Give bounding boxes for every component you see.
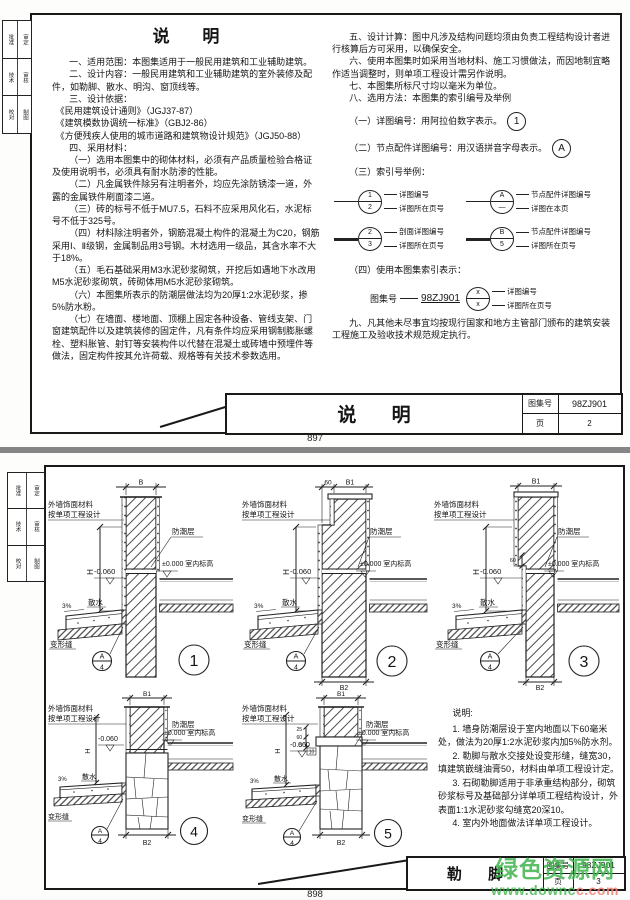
dim-label: B2: [337, 840, 346, 847]
ref-circle-bottom: 4: [488, 665, 492, 672]
para: （三）砖的标号不低于MU7.5，石料不应采用风化石，水泥标号不低于325号。: [52, 203, 320, 227]
facade-label-2: 按单项工程设计: [434, 509, 487, 519]
catalog-number: 98ZJ901: [421, 292, 460, 306]
outdoor-level-label: -0.060: [94, 567, 115, 576]
facade-label-1: 外墙饰面材料: [48, 499, 93, 509]
title-block-bottom: 勒 脚 图集号 98ZJ901 页 3: [406, 856, 626, 891]
index-label: 详图所在页号: [531, 241, 576, 251]
para: （五）毛石基础采用M3水泥砂浆砌筑，开挖后如遇地下水改用M5水泥砂浆砌筑，砖砌体…: [52, 264, 320, 288]
dim-label: B2: [143, 840, 152, 847]
para: （三）索引号举例：: [332, 166, 616, 178]
para: （一）详图编号：用阿拉伯数字表示。1: [332, 112, 616, 131]
index-label: 详图在本页: [531, 204, 569, 214]
title-block-name: 说 明: [227, 395, 522, 433]
dim-label-h: H: [83, 748, 92, 753]
index-label: 详图编号: [507, 287, 537, 297]
para: 一、适用范围：本图集适用于一般民用建筑和工业辅助建筑。: [52, 56, 320, 68]
slope-label: 3%: [452, 603, 462, 610]
detail-number: 4: [190, 824, 198, 840]
notes-right-column: 五、设计计算：图中凡涉及结构问题均须由负责工程结构设计者进行核算后方可采用，以确…: [332, 31, 616, 341]
index-circle: xx: [466, 287, 490, 311]
apron-label: 散水: [274, 774, 288, 783]
side-tab-strip-top: 批准审定 技术审核 校对制图: [2, 20, 32, 134]
catalog-label: 图集号: [370, 293, 397, 305]
apron-label: 散水: [282, 597, 297, 607]
para: 四、采用材料：: [52, 142, 320, 154]
tab-cell: 审核: [26, 509, 45, 544]
facade-label-1: 外墙饰面材料: [242, 499, 287, 509]
tab-cell: 技术: [8, 509, 26, 544]
detail-3: B1 60 外墙饰面材料 按单项工程设计 防潮层 ±0.000 室内标高 H -…: [432, 477, 622, 696]
facade-label-2: 按单项工程设计: [48, 509, 101, 519]
dpc-label: 防潮层: [366, 719, 389, 729]
dim-label: 60: [324, 480, 332, 487]
para: （二）凡金属铁件除另有注明者外，均应先涂防锈漆一道，外露的金属铁件刷面漆二道。: [52, 178, 320, 202]
slope-label: 3%: [62, 603, 72, 610]
facade-label-2: 按单项工程设计: [48, 713, 101, 723]
detail-number: 5: [384, 826, 392, 842]
joint-label: 变形缝: [436, 639, 459, 649]
tab-cell: 审核: [17, 59, 32, 96]
tab-cell: 审定: [17, 21, 32, 58]
para: （四）材料除注明者外，钢筋混凝土构件的混凝土为C20，钢筋采用Ⅰ、Ⅱ级钢，金属制…: [52, 227, 320, 264]
para: 二、设计内容：一般民用建筑和工业辅助建筑的室外装修及配件，如勒脚、散水、明沟、窗…: [52, 68, 320, 92]
dim-label: 25: [296, 727, 302, 733]
ref-circle-bottom: 4: [100, 665, 104, 672]
tab-cell: 审定: [26, 473, 45, 508]
detail-5: B1 25 60 5 10 60 外墙饰面材料 按单项工程设计 防潮层 ±0.0…: [240, 691, 430, 862]
dim-label: 60: [510, 558, 516, 564]
index-circle: 12: [358, 190, 382, 214]
tab-cell: 批准: [8, 473, 26, 508]
para: 七、本图集所标尺寸均以毫米为单位。: [332, 80, 616, 92]
page-label: 页: [523, 414, 559, 433]
catalog-number: 98ZJ901: [559, 395, 621, 415]
page-notes: 批准审定 技术审核 校对制图 说 明 一、适用范围：本图集适用于一般民用建筑和工…: [30, 13, 622, 434]
notes-left-column: 说 明 一、适用范围：本图集适用于一般民用建筑和工业辅助建筑。 二、设计内容：一…: [52, 23, 320, 362]
joint-label: 变形缝: [50, 639, 73, 649]
indoor-level-label: ±0.000 室内标高: [358, 728, 409, 737]
tab-cell: 制图: [26, 546, 45, 581]
tab-cell: 批准: [3, 21, 17, 58]
dim-label-h: H: [273, 748, 282, 753]
para: （四）使用本图集索引表示：: [332, 264, 616, 276]
scan-page-number-bottom: 898: [0, 889, 630, 900]
facade-label-2: 按单项工程设计: [242, 509, 295, 519]
page-label: 页: [544, 874, 574, 889]
catalog-index-example: 图集号 98ZJ901 xx 详图编号 详图所在页号: [370, 287, 616, 311]
para: 三、设计依据：: [52, 93, 320, 105]
slope-label: 3%: [58, 777, 67, 783]
dpc-label: 防潮层: [370, 526, 393, 536]
title-block-name: 勒 脚: [408, 858, 543, 889]
detail-2: 60 B1 外墙饰面材料 按单项工程设计 防潮层 ±0.000 室内标高 H -…: [240, 477, 430, 696]
index-examples: 12 详图编号 详图所在页号 A— 节点配件详图编号 详图在本页 23 剖面详图…: [332, 190, 616, 252]
page-plinth-details: 批准审定 技术审核 校对制图 B 外墙饰面材料 按单项工程设计 防潮层 ±0.0…: [44, 465, 625, 890]
para: 六、使用本图集时如采用当地材料、施工习惯做法，而因地制宜略作适当调整时，则单项工…: [332, 55, 616, 79]
para-ref: 《建筑模数协调统一标准》（GBJ2-86）: [52, 117, 320, 129]
index-circle: B5: [490, 227, 514, 251]
note-item: 2. 勒脚与散水交接处设变形缝，缝宽30，填建筑嵌缝油膏50，材料由单项工程设计…: [438, 750, 620, 777]
index-label: 详图编号: [399, 190, 429, 200]
facade-label-1: 外墙饰面材料: [48, 703, 93, 713]
detail-2-drawing: 60 B1 外墙饰面材料 按单项工程设计 防潮层 ±0.000 室内标高 H -…: [240, 477, 430, 691]
dim-label: B2: [536, 685, 545, 691]
index-label: 详图所在页号: [399, 241, 444, 251]
index-label: 详图所在页号: [507, 301, 552, 311]
ref-circle-top: A: [488, 654, 493, 661]
indoor-level-label: ±0.000 室内标高: [164, 728, 215, 737]
joint-label: 变形缝: [242, 814, 263, 823]
detail-1: B 外墙饰面材料 按单项工程设计 防潮层 ±0.000 室内标高 H -0.06…: [46, 477, 236, 696]
frame-diagonal: [258, 860, 408, 885]
ref-circle-bottom: 4: [290, 840, 294, 847]
scan-separator: [0, 447, 630, 453]
index-label: 节点配件详图编号: [531, 190, 591, 200]
detail-number: 3: [580, 654, 589, 671]
catalog-number: 98ZJ901: [574, 858, 624, 874]
dpc-label: 防潮层: [172, 526, 195, 536]
para: （六）本图集所表示的防潮层做法均为20厚1:2水泥砂浆，掺5%防水粉。: [52, 289, 320, 313]
joint-label: 变形缝: [48, 812, 69, 821]
page-number: 2: [559, 414, 621, 433]
para: （二）节点配件详图编号：用汉语拼音字母表示。A: [332, 139, 616, 158]
title-block-top: 说 明 图集号 98ZJ901 页 2: [225, 393, 623, 435]
index-label: 剖面详图编号: [399, 227, 444, 237]
tab-cell: 校对: [8, 546, 26, 581]
dim-label: B1: [143, 691, 151, 698]
dpc-label: 防潮层: [558, 526, 581, 536]
detail-notes: 说明: 1. 墙身防潮层设于室内地面以下60毫米处，做法为20厚1:2水泥砂浆内…: [438, 707, 620, 831]
index-circle: 23: [358, 227, 382, 251]
apron-label: 散水: [82, 772, 96, 781]
ref-circle-bottom: 4: [294, 665, 298, 672]
tab-cell: 技术: [3, 59, 17, 96]
slope-label: 3%: [250, 779, 259, 785]
indoor-level-label: ±0.000 室内标高: [162, 559, 213, 568]
detail-number: 2: [388, 654, 397, 671]
note-item: 4. 室内外地面做法详单项工程设计。: [438, 817, 620, 831]
joint-label: 变形缝: [244, 639, 267, 649]
scan-page-number-top: 897: [0, 433, 630, 444]
apron-label: 散水: [480, 597, 495, 607]
catalog-label: 图集号: [523, 395, 559, 415]
tab-cell: 制图: [17, 96, 32, 133]
ref-circle-bottom: 4: [98, 838, 102, 845]
apron-label: 散水: [88, 597, 103, 607]
detail-4: B1 外墙饰面材料 按单项工程设计 防潮层 ±0.000 室内标高 H -0.0…: [46, 691, 236, 862]
page-number: 3: [574, 874, 624, 889]
catalog-label: 图集号: [544, 858, 574, 874]
detail-3-drawing: B1 60 外墙饰面材料 按单项工程设计 防潮层 ±0.000 室内标高 H -…: [432, 477, 622, 691]
note-item: 1. 墙身防潮层设于室内地面以下60毫米处，做法为20厚1:2水泥砂浆内加5%防…: [438, 723, 620, 750]
dim-label: B: [139, 480, 144, 487]
facade-label-1: 外墙饰面材料: [242, 703, 287, 713]
para: （七）在墙面、楼地面、顶棚上固定各种设备、管线支架、门窗建筑配件以及建筑装修的固…: [52, 313, 320, 362]
tab-cell: 校对: [3, 96, 17, 133]
notes-heading: 说明:: [438, 707, 620, 721]
outdoor-level-label: -0.060: [290, 742, 310, 749]
dim-label: B1: [337, 691, 345, 698]
ref-circle-top: A: [98, 828, 103, 835]
detail-5-drawing: B1 25 60 5 10 60 外墙饰面材料 按单项工程设计 防潮层 ±0.0…: [240, 691, 430, 857]
slope-label: 3%: [254, 603, 264, 610]
detail-number: 1: [190, 653, 199, 670]
side-tab-strip-bottom: 批准审定 技术审核 校对制图: [7, 472, 45, 582]
outdoor-level-label: -0.060: [480, 567, 501, 576]
note-item: 3. 石砌勒脚适用于非承重结构部分，砌筑砂浆标号及基础部分详单项工程结构设计，外…: [438, 777, 620, 818]
detail-number-circle: 1: [507, 112, 526, 131]
index-circle: A—: [490, 190, 514, 214]
facade-label-1: 外墙饰面材料: [434, 499, 479, 509]
page-title: 说 明: [66, 25, 320, 48]
index-label: 节点配件详图编号: [531, 227, 591, 237]
para: 五、设计计算：图中凡涉及结构问题均须由负责工程结构设计者进行核算后方可采用，以确…: [332, 31, 616, 55]
indoor-level-label: ±0.000 室内标高: [548, 559, 599, 568]
index-label: 详图所在页号: [399, 204, 444, 214]
outdoor-level-label: -0.060: [290, 567, 311, 576]
dim-label: 10: [309, 750, 315, 756]
detail-1-drawing: B 外墙饰面材料 按单项工程设计 防潮层 ±0.000 室内标高 H -0.06…: [46, 477, 236, 691]
ref-circle-top: A: [290, 830, 295, 837]
scanned-document: 批准审定 技术审核 校对制图 说 明 一、适用范围：本图集适用于一般民用建筑和工…: [0, 0, 630, 899]
dpc-label: 防潮层: [172, 719, 195, 729]
ref-circle-top: A: [100, 654, 105, 661]
indoor-level-label: ±0.000 室内标高: [360, 559, 411, 568]
dim-label: 60: [296, 735, 302, 741]
para-ref: 《民用建筑设计通则》（JGJ37-87）: [52, 105, 320, 117]
outdoor-level-label: -0.060: [98, 736, 118, 743]
node-letter-circle: A: [552, 139, 571, 158]
para-ref: 《方便残疾人使用的城市道路和建筑物设计规范》（JGJ50-88）: [52, 130, 320, 142]
para: 八、选用方法：本图集的索引编号及举例: [332, 92, 616, 104]
dim-label: B1: [346, 480, 355, 487]
ref-circle-top: A: [294, 654, 299, 661]
detail-4-drawing: B1 外墙饰面材料 按单项工程设计 防潮层 ±0.000 室内标高 H -0.0…: [46, 691, 236, 857]
para: （一）选用本图集中的砌体材料，必须有产品质量检验合格证及使用说明书，必须具有耐水…: [52, 154, 320, 178]
para: 九、凡其他未尽事宜均按现行国家和地方主管部门颁布的建筑安装工程施工及验收技术规范…: [332, 317, 616, 341]
dim-label: B1: [532, 479, 541, 486]
